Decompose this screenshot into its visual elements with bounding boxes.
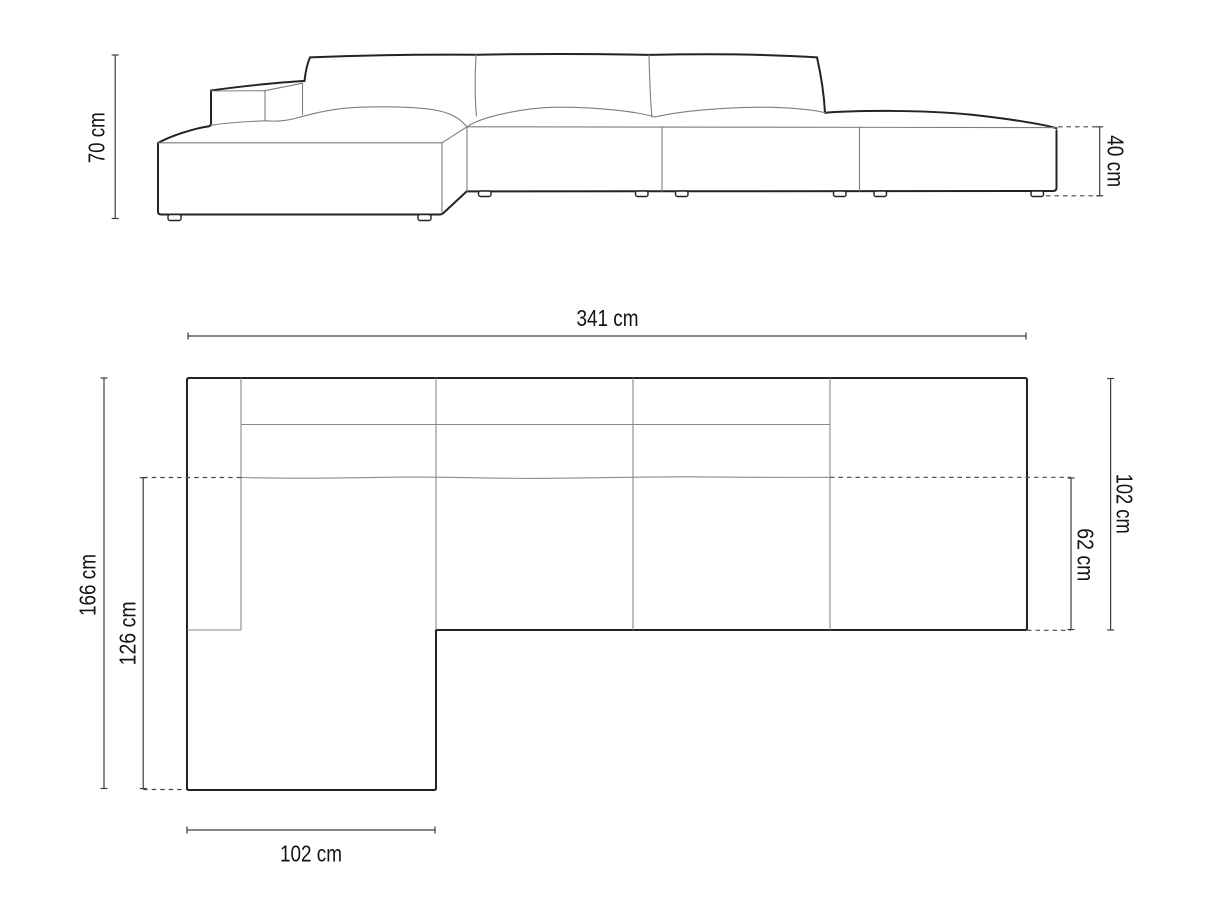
svg-text:341 cm: 341 cm <box>577 305 639 331</box>
svg-text:166 cm: 166 cm <box>75 554 101 616</box>
svg-text:62 cm: 62 cm <box>1073 528 1099 581</box>
svg-text:102 cm: 102 cm <box>1112 474 1138 534</box>
svg-text:126 cm: 126 cm <box>115 601 141 665</box>
svg-text:70 cm: 70 cm <box>84 112 110 163</box>
svg-text:102 cm: 102 cm <box>280 841 342 867</box>
svg-text:40 cm: 40 cm <box>1103 135 1129 187</box>
